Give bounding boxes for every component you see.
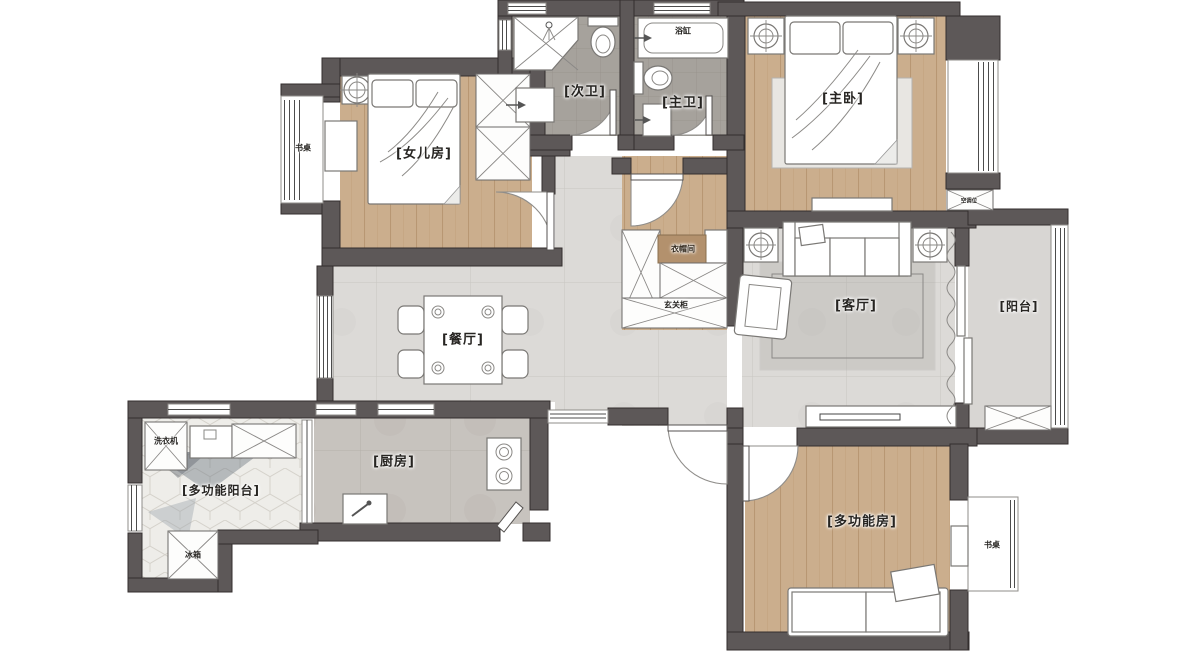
door-entry bbox=[668, 425, 727, 484]
tv bbox=[820, 414, 900, 420]
master-low-cabinet bbox=[812, 198, 892, 211]
tv-console bbox=[806, 406, 956, 427]
master-bath-top-window bbox=[654, 3, 710, 14]
sofa bbox=[783, 222, 911, 276]
master-nightstand-left bbox=[748, 18, 784, 54]
ac-unit-box bbox=[947, 190, 993, 210]
cloakroom-shelf bbox=[658, 235, 706, 263]
master-nightstand-right bbox=[898, 18, 934, 54]
bathtub bbox=[634, 18, 728, 58]
secondary-bath-top-window bbox=[508, 3, 546, 14]
armchair bbox=[734, 274, 792, 339]
shower-stall bbox=[514, 17, 578, 70]
floor-plan-drawing bbox=[0, 0, 1200, 660]
dining-table bbox=[424, 296, 502, 384]
kitchen-balcony-divider-window bbox=[302, 420, 312, 523]
dining-chair bbox=[502, 350, 528, 378]
master-bay-window bbox=[948, 60, 998, 173]
living-side-table-left bbox=[744, 228, 778, 262]
floor-plan: [女儿房] [次卫] [主卫] [主卧] [餐厅] [客厅] [阳台] [厨房]… bbox=[0, 0, 1200, 660]
master-bed bbox=[785, 16, 897, 164]
multi-room-bay-window bbox=[968, 497, 1018, 591]
fridge-box bbox=[168, 531, 218, 579]
living-side-table-right bbox=[913, 228, 947, 262]
daughter-desk bbox=[325, 121, 357, 171]
entry-sill-window bbox=[548, 410, 608, 423]
kitchen-sink-counter bbox=[343, 494, 387, 524]
dining-chair bbox=[398, 350, 424, 378]
secondary-bath-left-window bbox=[499, 20, 511, 50]
daughter-bed bbox=[368, 74, 460, 204]
balcony-right-window bbox=[1051, 225, 1068, 428]
daughter-bay-window bbox=[281, 96, 323, 203]
balcony-bottom-box bbox=[985, 406, 1051, 430]
multi-balcony-left-window bbox=[128, 485, 142, 531]
multi-room-desk bbox=[951, 526, 968, 566]
sofa-pillow bbox=[799, 224, 825, 245]
dining-chair bbox=[398, 306, 424, 334]
multi-balcony-top-window bbox=[168, 404, 230, 415]
dining-chair bbox=[502, 306, 528, 334]
balcony-floor bbox=[968, 225, 1051, 429]
dining-window bbox=[317, 296, 333, 378]
kitchen-stove bbox=[487, 438, 521, 490]
cloakroom-cabinets bbox=[622, 230, 727, 328]
balcony-cabinet-box bbox=[232, 424, 296, 458]
